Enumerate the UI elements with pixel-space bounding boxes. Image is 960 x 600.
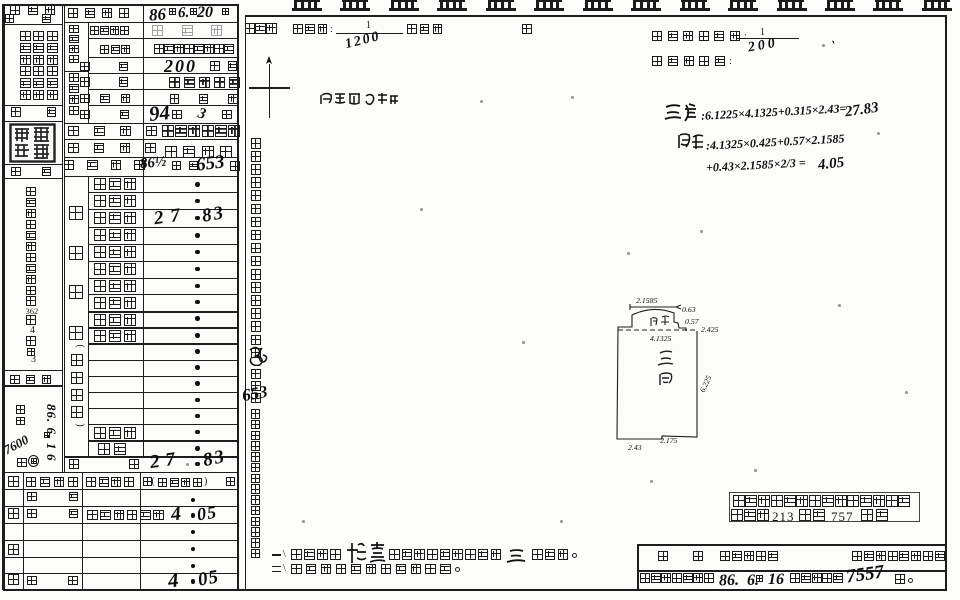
svg-text:0.63: 0.63 xyxy=(682,305,696,314)
svg-text:6.225: 6.225 xyxy=(698,374,714,394)
svg-text:2.175: 2.175 xyxy=(660,436,678,445)
svg-text:0.57: 0.57 xyxy=(685,317,700,326)
svg-text:2.1585: 2.1585 xyxy=(636,296,658,305)
svg-text:2.43: 2.43 xyxy=(628,443,642,452)
svg-text:2.425: 2.425 xyxy=(701,325,719,334)
svg-text:4.1325: 4.1325 xyxy=(650,334,672,343)
